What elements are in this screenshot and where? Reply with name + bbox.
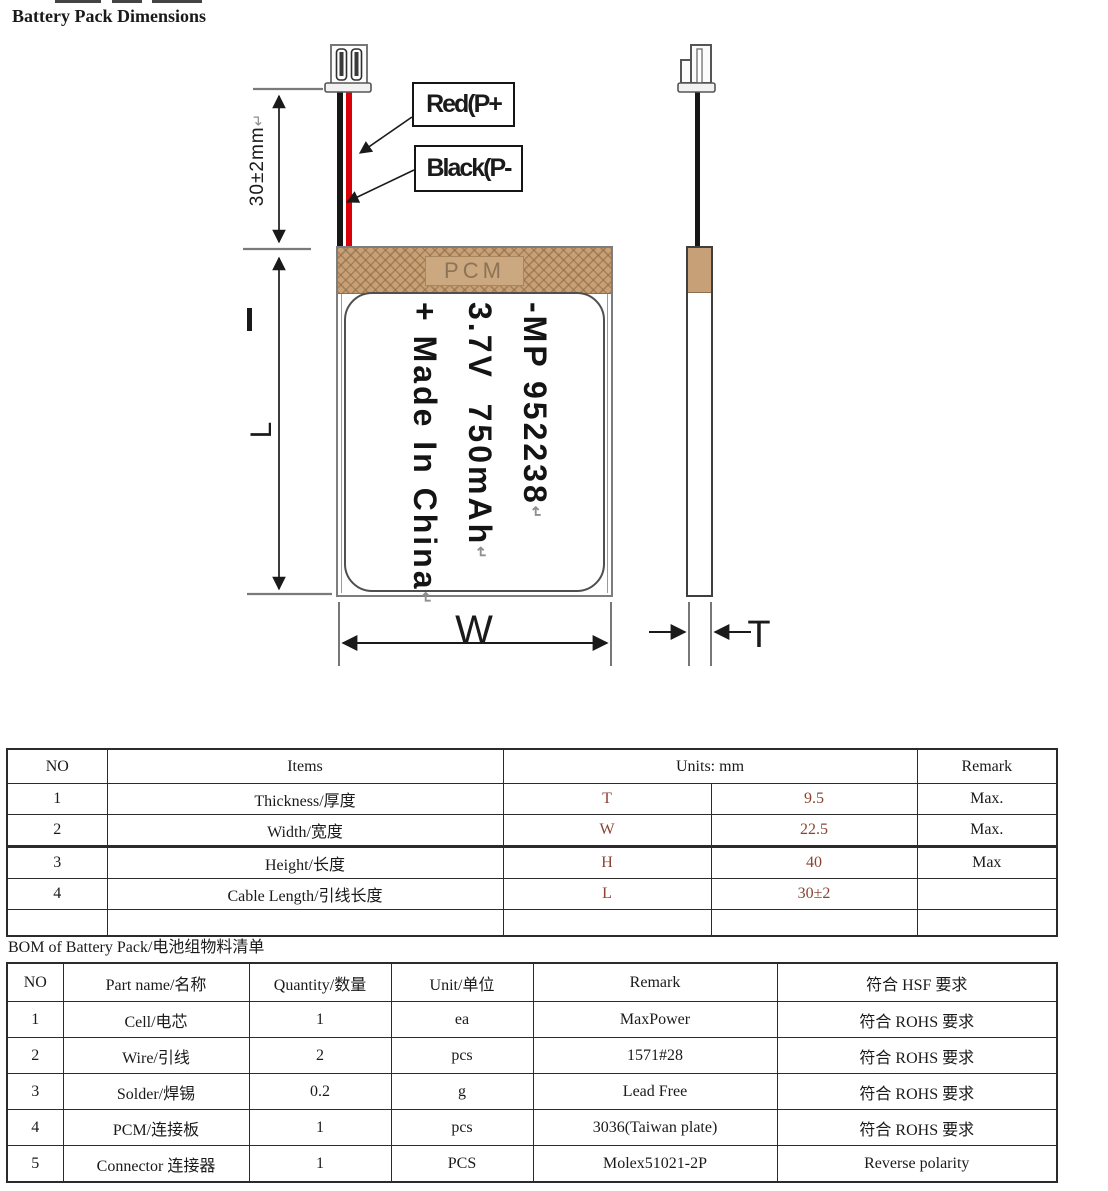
bom-caption: BOM of Battery Pack/电池组物料清单 — [8, 933, 264, 957]
callout-leader-arrows — [347, 117, 414, 202]
black-wire-side — [695, 92, 700, 248]
cell-quantity: 1 — [249, 1002, 391, 1038]
table-row: 3 Solder/焊锡 0.2 g Lead Free 符合 ROHS 要求 — [7, 1074, 1057, 1110]
cell-no: 3 — [7, 847, 107, 879]
cell-value — [711, 910, 917, 937]
pcm-band-side — [688, 248, 711, 293]
table-row: 5 Connector 连接器 1 PCS Molex51021-2P Reve… — [7, 1146, 1057, 1183]
header-remark: Remark — [533, 963, 777, 1002]
cell-letter: H — [503, 847, 711, 879]
cropped-text-remnant — [55, 0, 101, 3]
table-row: 2 Width/宽度 W 22.5 Max. — [7, 815, 1057, 847]
cell-letter: W — [503, 815, 711, 847]
header-partname: Part name/名称 — [63, 963, 249, 1002]
table-row: 4 PCM/连接板 1 pcs 3036(Taiwan plate) 符合 RO… — [7, 1110, 1057, 1146]
page-title: Battery Pack Dimensions — [12, 6, 206, 27]
table-header-row: NO Part name/名称 Quantity/数量 Unit/单位 Rema… — [7, 963, 1057, 1002]
return-mark-icon: ↵ — [417, 591, 434, 604]
battery-print-label: -MP 952238↵ 3.7V 750mAh↵ + Made In China… — [388, 302, 553, 597]
black-wire-front — [337, 92, 343, 248]
table-row: 1 Cell/电芯 1 ea MaxPower 符合 ROHS 要求 — [7, 1002, 1057, 1038]
cell-quantity: 1 — [249, 1110, 391, 1146]
table-header-row: NO Items Units: mm Remark — [7, 749, 1057, 784]
dash-mark — [247, 308, 252, 331]
cell-letter — [503, 910, 711, 937]
cell-hsf: Reverse polarity — [777, 1146, 1057, 1183]
cell-remark: Lead Free — [533, 1074, 777, 1110]
cell-remark — [917, 879, 1057, 910]
return-mark-icon: ↵ — [250, 114, 267, 127]
cell-no: 2 — [7, 1038, 63, 1074]
cropped-text-remnant — [112, 0, 142, 3]
cell-partname: Wire/引线 — [63, 1038, 249, 1074]
cell-value: 22.5 — [711, 815, 917, 847]
battery-label-line: -MP 952238↵ — [498, 302, 553, 597]
cell-item: Width/宽度 — [107, 815, 503, 847]
header-quantity: Quantity/数量 — [249, 963, 391, 1002]
cell-no: 5 — [7, 1146, 63, 1183]
cell-remark: MaxPower — [533, 1002, 777, 1038]
cropped-text-remnant — [152, 0, 202, 3]
cell-value: 40 — [711, 847, 917, 879]
table-row: 3 Height/长度 H 40 Max — [7, 847, 1057, 879]
cell-remark: Max. — [917, 784, 1057, 815]
pouch-fold-line — [607, 292, 608, 593]
return-mark-icon: ↵ — [472, 546, 489, 559]
cell-unit: g — [391, 1074, 533, 1110]
cell-item: Height/长度 — [107, 847, 503, 879]
cell-unit: ea — [391, 1002, 533, 1038]
cell-remark: Max. — [917, 815, 1057, 847]
return-mark-icon: ↵ — [527, 506, 544, 519]
cell-remark: Molex51021-2P — [533, 1146, 777, 1183]
header-unit: Unit/单位 — [391, 963, 533, 1002]
table-row: 1 Thickness/厚度 T 9.5 Max. — [7, 784, 1057, 815]
black-wire-callout: Black(P- — [414, 145, 523, 192]
dimensions-table: NO Items Units: mm Remark 1 Thickness/厚度… — [6, 748, 1058, 937]
cell-item: Cable Length/引线长度 — [107, 879, 503, 910]
table-row: 4 Cable Length/引线长度 L 30±2 — [7, 879, 1057, 910]
red-wire-front — [346, 92, 352, 248]
cell-hsf: 符合 ROHS 要求 — [777, 1002, 1057, 1038]
header-items: Items — [107, 749, 503, 784]
battery-front-view: PCM -MP 952238↵ 3.7V 750mAh↵ + Made In C… — [336, 246, 613, 597]
cell-remark: 3036(Taiwan plate) — [533, 1110, 777, 1146]
cell-remark: 1571#28 — [533, 1038, 777, 1074]
battery-label-line: + Made In China↵ — [388, 302, 443, 597]
connector-front-icon — [325, 45, 371, 92]
cell-item: Thickness/厚度 — [107, 784, 503, 815]
cell-letter: T — [503, 784, 711, 815]
cell-no: 3 — [7, 1074, 63, 1110]
bom-table: NO Part name/名称 Quantity/数量 Unit/单位 Rema… — [6, 962, 1058, 1183]
connector-side-icon — [678, 45, 715, 92]
pcm-label: PCM — [425, 256, 524, 286]
length-dimension-text: L — [245, 410, 275, 450]
thickness-dimension-line — [649, 602, 751, 666]
header-remark: Remark — [917, 749, 1057, 784]
battery-side-view — [686, 246, 713, 597]
cell-hsf: 符合 ROHS 要求 — [777, 1110, 1057, 1146]
header-no: NO — [7, 963, 63, 1002]
cell-partname: Connector 连接器 — [63, 1146, 249, 1183]
cell-partname: Cell/电芯 — [63, 1002, 249, 1038]
cell-no: 4 — [7, 879, 107, 910]
header-units: Units: mm — [503, 749, 917, 784]
cell-value: 30±2 — [711, 879, 917, 910]
cell-quantity: 2 — [249, 1038, 391, 1074]
header-no: NO — [7, 749, 107, 784]
cell-hsf: 符合 ROHS 要求 — [777, 1074, 1057, 1110]
cell-quantity: 1 — [249, 1146, 391, 1183]
cell-quantity: 0.2 — [249, 1074, 391, 1110]
cell-remark: Max — [917, 847, 1057, 879]
datasheet-page: { "page": { "title": "Battery Pack Dimen… — [0, 0, 1108, 1191]
battery-diagram: PCM -MP 952238↵ 3.7V 750mAh↵ + Made In C… — [0, 40, 800, 680]
cell-unit: PCS — [391, 1146, 533, 1183]
cell-unit: pcs — [391, 1110, 533, 1146]
thickness-dimension-text: T — [746, 614, 772, 657]
cell-partname: PCM/连接板 — [63, 1110, 249, 1146]
table-row: 2 Wire/引线 2 pcs 1571#28 符合 ROHS 要求 — [7, 1038, 1057, 1074]
cell-letter: L — [503, 879, 711, 910]
pcm-band: PCM — [338, 248, 611, 294]
cell-unit: pcs — [391, 1038, 533, 1074]
cell-partname: Solder/焊锡 — [63, 1074, 249, 1110]
cell-hsf: 符合 ROHS 要求 — [777, 1038, 1057, 1074]
header-hsf: 符合 HSF 要求 — [777, 963, 1057, 1002]
cell-value: 9.5 — [711, 784, 917, 815]
cell-no: 1 — [7, 1002, 63, 1038]
width-dimension-text: W — [452, 608, 496, 653]
cell-no: 4 — [7, 1110, 63, 1146]
battery-label-line: 3.7V 750mAh↵ — [443, 302, 498, 597]
pouch-fold-line — [341, 292, 342, 593]
cell-no: 2 — [7, 815, 107, 847]
cell-no: 1 — [7, 784, 107, 815]
cell-remark — [917, 910, 1057, 937]
red-wire-callout: Red(P+ — [412, 82, 515, 127]
cable-length-dimension-text: 30±2mm↵ — [247, 95, 273, 225]
